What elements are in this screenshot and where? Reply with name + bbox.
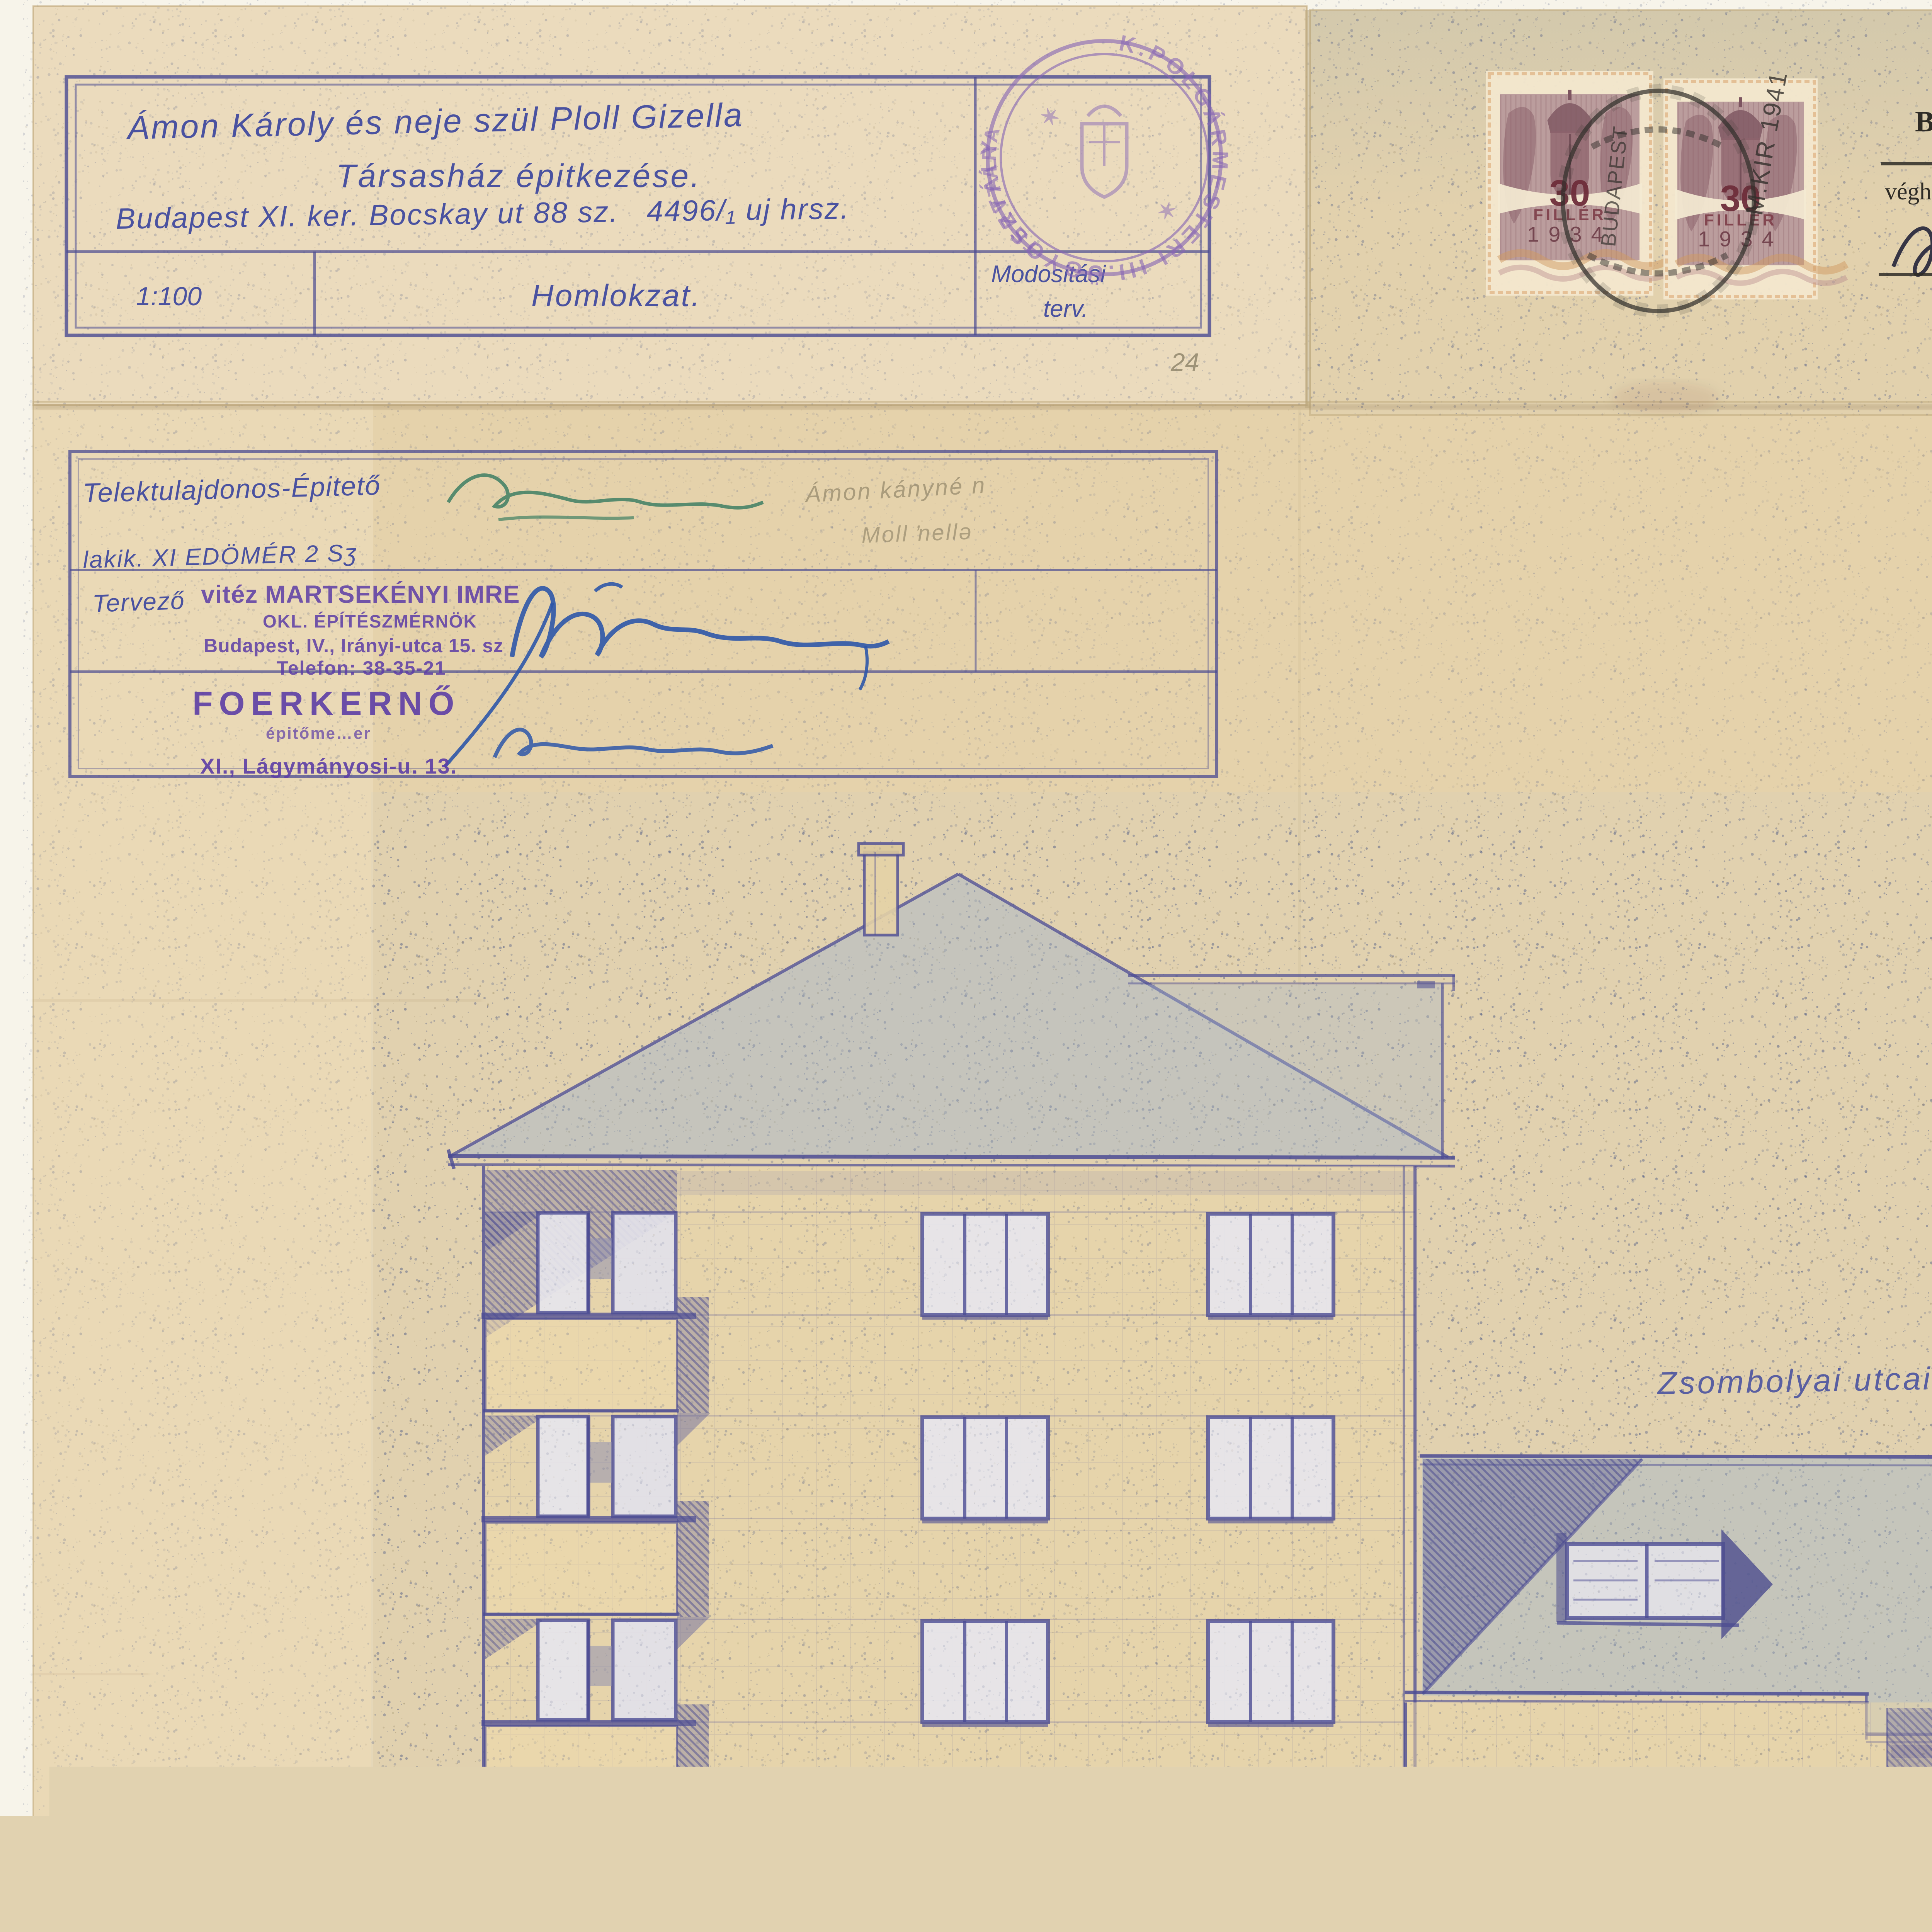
svg-text:Tervező: Tervező — [92, 587, 185, 617]
svg-text:épitőme…er: épitőme…er — [266, 724, 371, 742]
svg-text:1:100: 1:100 — [136, 282, 202, 311]
svg-text:Telefon: 38-35-21: Telefon: 38-35-21 — [277, 657, 446, 679]
svg-text:vitéz MARTSEKÉNYI IMRE: vitéz MARTSEKÉNYI IMRE — [201, 580, 520, 608]
svg-text:terv.: terv. — [1043, 296, 1088, 322]
svg-text:24: 24 — [1170, 348, 1199, 376]
svg-text:Budapest Székesfőváros polgárm: Budapest Székesfőváros polgármestere — [1915, 105, 1932, 138]
svg-text:Moll ŉellə: Moll ŉellə — [861, 519, 973, 548]
svg-text:FOERKERNŐ: FOERKERNŐ — [192, 685, 460, 722]
svg-text:OKL. ÉPÍTÉSZMÉRNÖK: OKL. ÉPÍTÉSZMÉRNÖK — [263, 611, 477, 631]
svg-text:Társasház épitkezése.: Társasház épitkezése. — [336, 158, 701, 194]
svg-text:XI., Lágymányosi-u. 13.: XI., Lágymányosi-u. 13. — [200, 754, 457, 778]
svg-text:véghatározával: véghatározával — [1885, 179, 1932, 205]
svg-text:Budapest, IV., Irányi-utca 15.: Budapest, IV., Irányi-utca 15. sz — [204, 635, 503, 656]
svg-text:Homlokzat.: Homlokzat. — [531, 278, 701, 313]
